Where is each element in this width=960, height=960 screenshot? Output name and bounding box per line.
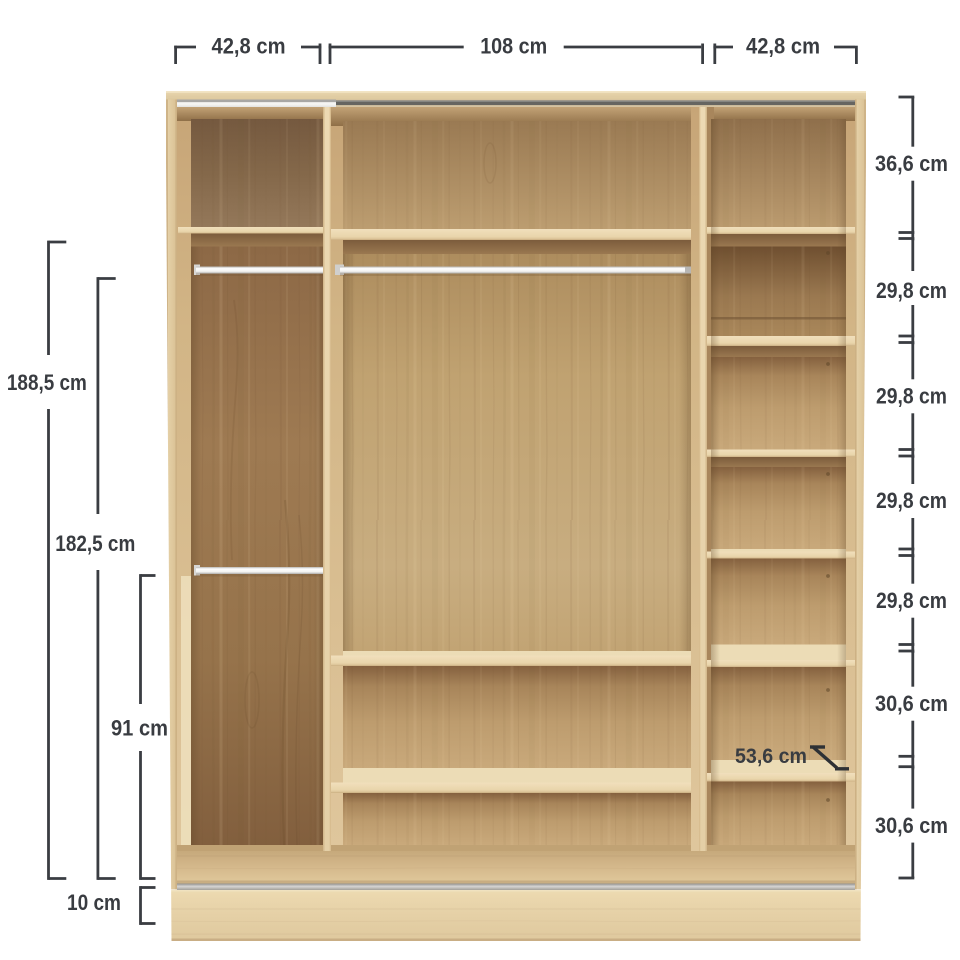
svg-text:91 cm: 91 cm xyxy=(111,715,168,740)
svg-text:182,5 cm: 182,5 cm xyxy=(55,531,135,556)
svg-text:42,8 cm: 42,8 cm xyxy=(746,34,820,59)
svg-text:29,8 cm: 29,8 cm xyxy=(876,384,947,409)
svg-text:29,8 cm: 29,8 cm xyxy=(876,588,947,613)
svg-text:36,6 cm: 36,6 cm xyxy=(875,151,948,176)
svg-text:42,8 cm: 42,8 cm xyxy=(212,34,286,59)
svg-text:29,8 cm: 29,8 cm xyxy=(876,488,947,513)
svg-text:108 cm: 108 cm xyxy=(480,34,547,59)
svg-text:30,6 cm: 30,6 cm xyxy=(875,813,948,838)
svg-text:53,6 cm: 53,6 cm xyxy=(735,745,807,768)
svg-text:29,8 cm: 29,8 cm xyxy=(876,278,947,303)
svg-text:10 cm: 10 cm xyxy=(67,890,121,915)
svg-text:188,5 cm: 188,5 cm xyxy=(7,370,87,395)
svg-text:30,6 cm: 30,6 cm xyxy=(875,691,948,716)
